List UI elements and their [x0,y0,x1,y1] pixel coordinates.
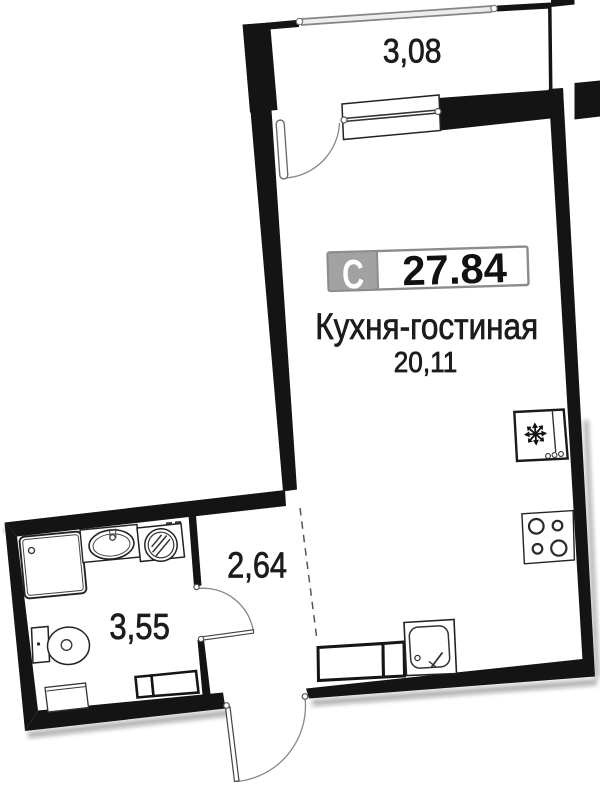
svg-text:2,64: 2,64 [227,546,287,586]
svg-text:С: С [341,250,364,297]
svg-text:Кухня-гостиная: Кухня-гостиная [315,307,538,348]
svg-text:20,11: 20,11 [394,346,457,378]
svg-text:27.84: 27.84 [402,244,509,294]
svg-text:3,08: 3,08 [383,32,442,70]
svg-text:3,55: 3,55 [109,608,170,648]
